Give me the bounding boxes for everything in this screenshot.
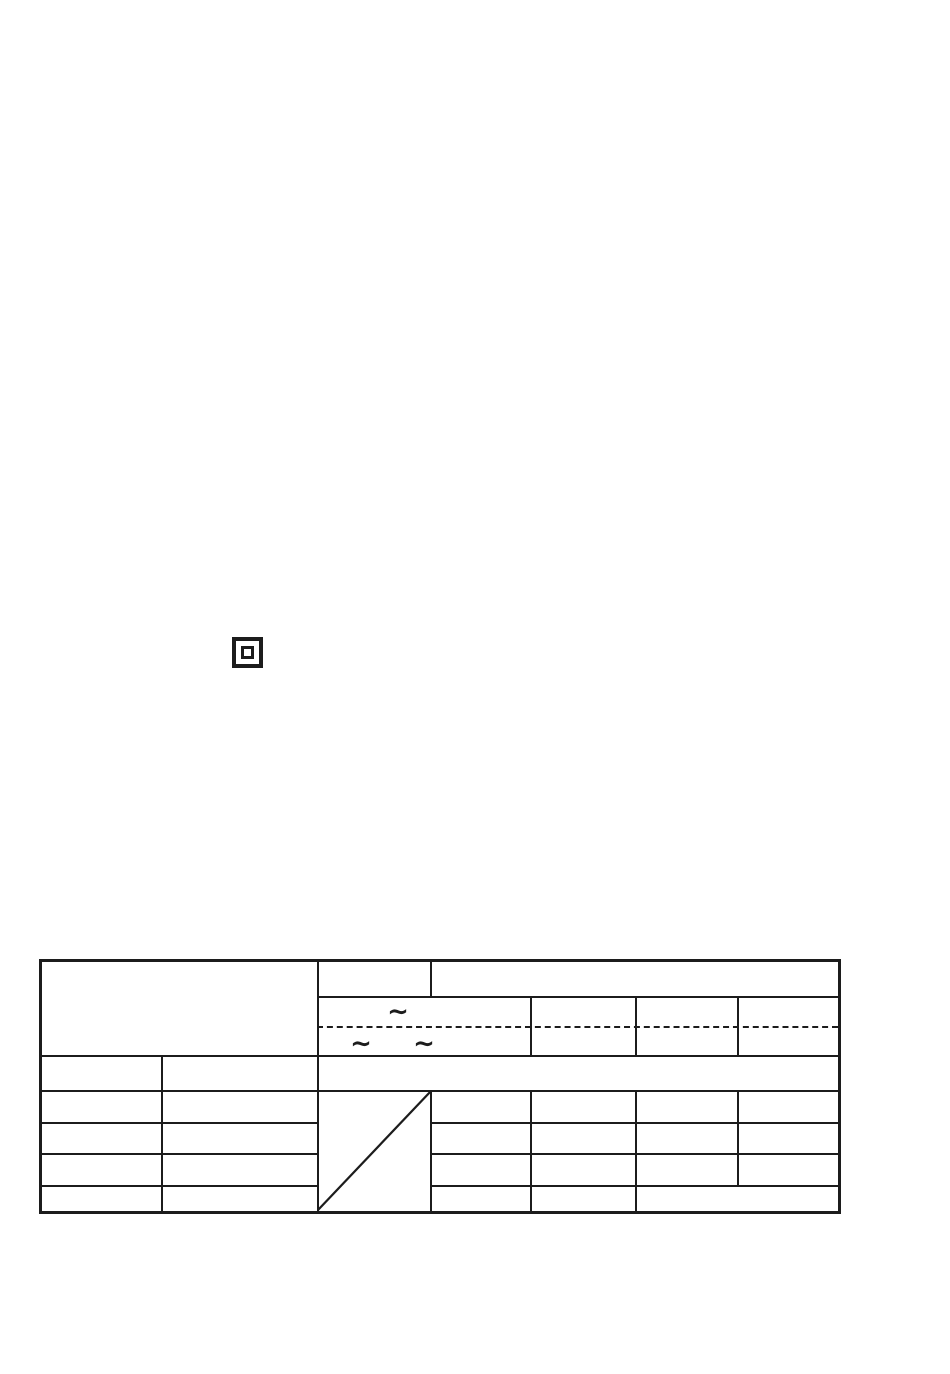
grid-line-h-row3-left [42,1122,319,1124]
grid-line-h-row5-right [430,1185,838,1187]
grid-line-v-col3-bottom [737,1090,739,1187]
grid-line-h-row5-left [42,1185,319,1187]
class-ii-inner-square [241,646,254,659]
spec-table: ∼ ∼ ∼ [39,959,841,1214]
ac-tilde-icon: ∼ [413,1031,435,1057]
class-ii-double-insulation-icon [232,637,263,668]
grid-line-v-col2-bottom [635,1090,637,1211]
grid-line-h-row3-right [430,1122,838,1124]
grid-line-v-tilde-col-top [430,962,432,998]
grid-line-h-row4-left [42,1153,319,1155]
grid-line-h-row1 [42,1055,838,1057]
grid-line-v-left-divider [161,1055,163,1211]
grid-line-h-row2 [42,1090,838,1092]
grid-line-h-row4-right [430,1153,838,1155]
diagonal-divider [317,1090,432,1211]
grid-line-v-col1-bottom [530,1090,532,1211]
ac-tilde-icon: ∼ [350,1031,372,1057]
ac-tilde-icon: ∼ [387,999,409,1025]
manual-page: ∼ ∼ ∼ [0,0,950,1374]
